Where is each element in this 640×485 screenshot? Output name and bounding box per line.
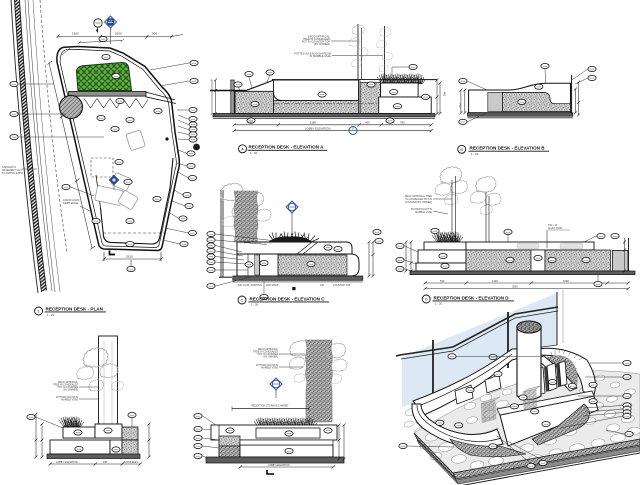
svg-text:1600: 1600 [563,279,569,283]
svg-text:1 : 20: 1 : 20 [435,302,443,306]
svg-text:450: 450 [443,92,446,97]
svg-text:RECEPTION DESK - ELEVATION A: RECEPTION DESK - ELEVATION A [249,145,325,150]
svg-text:TO MATCH EXIST.: TO MATCH EXIST. [2,171,24,175]
svg-text:420: 420 [365,121,370,125]
svg-text:1 : 20: 1 : 20 [471,152,479,156]
svg-text:2910: 2910 [126,255,133,259]
svg-text:LOBBY ELEVATION: LOBBY ELEVATION [268,464,290,467]
svg-text:1180: 1180 [310,121,316,125]
svg-text:1 : 20: 1 : 20 [251,303,259,307]
svg-text:RECEPTION DESK - PLAN: RECEPTION DESK - PLAN [46,306,104,311]
svg-text:1: 1 [37,309,40,314]
svg-text:MARBLE VASE: MARBLE VASE [61,399,78,402]
svg-text:LOBBY ELEVATION: LOBBY ELEVATION [305,126,330,130]
svg-text:3530: 3530 [512,285,518,289]
svg-text:MARBLE VASE: MARBLE VASE [415,211,432,214]
svg-text:900: 900 [152,32,157,36]
svg-text:A: A [241,147,244,151]
svg-text:IN MARBLE VASE: IN MARBLE VASE [310,54,332,58]
svg-text:(BY OWNER): (BY OWNER) [314,42,330,46]
svg-text:ALUM. TRIM: ALUM. TRIM [548,227,562,230]
svg-text:RECEPTION STORAGE CABINET: RECEPTION STORAGE CABINET [251,405,289,408]
svg-text:RECEPTION DESK - ELEVATION D: RECEPTION DESK - ELEVATION D [434,295,510,300]
svg-text:500: 500 [440,279,445,283]
svg-text:1500: 1500 [72,32,79,36]
svg-text:LOBBY ELEVATION: LOBBY ELEVATION [56,461,78,464]
svg-text:KERB EDGE: KERB EDGE [63,201,78,205]
svg-text:KIOSK ELEV.: KIOSK ELEV. [124,461,139,464]
svg-text:D: D [425,298,428,302]
svg-text:1430: 1430 [492,279,498,283]
svg-text:750: 750 [458,103,462,108]
svg-text:C: C [241,299,244,303]
svg-text:780: 780 [400,121,405,125]
svg-text:COUNTER TOP: COUNTER TOP [333,284,351,287]
svg-text:740: 740 [248,121,253,125]
svg-text:RECEPTION DESK - ELEVATION C: RECEPTION DESK - ELEVATION C [250,296,326,301]
svg-text:RECEPTION DESK - ELEVATION B: RECEPTION DESK - ELEVATION B [470,146,546,151]
svg-text:COUNTER (BY OWNER): COUNTER (BY OWNER) [405,201,432,204]
svg-text:LED STRIP: LED STRIP [266,284,279,287]
svg-text:(BY OWNER): (BY OWNER) [63,389,78,392]
svg-text:450: 450 [103,461,108,464]
svg-text:2600: 2600 [115,32,122,36]
svg-text:1 : 20: 1 : 20 [250,151,258,155]
svg-text:150: 150 [320,284,325,287]
svg-text:1 : 20: 1 : 20 [47,313,55,317]
svg-text:600 ALUM. SKIRTING: 600 ALUM. SKIRTING [238,284,262,287]
svg-text:(BY OWNER): (BY OWNER) [263,356,278,359]
svg-text:B: B [460,148,463,152]
svg-text:MARBLE VASE: MARBLE VASE [261,367,278,370]
